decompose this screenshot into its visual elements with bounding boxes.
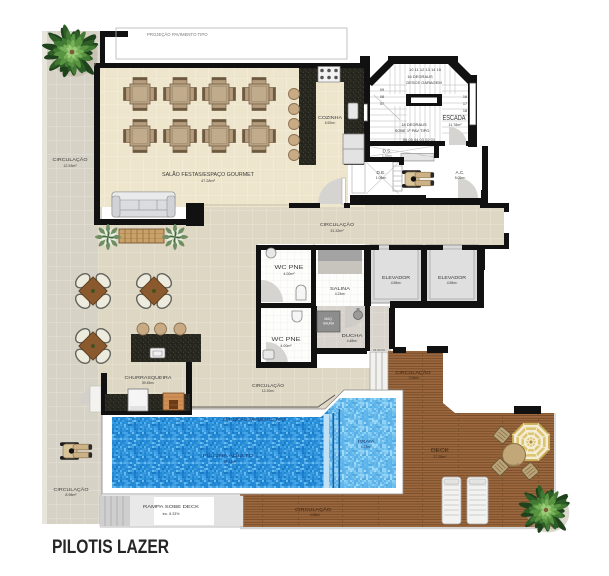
svg-text:MAQ.: MAQ. (324, 317, 332, 321)
svg-text:4.08m²: 4.08m² (310, 513, 321, 517)
svg-text:WC PNE: WC PNE (275, 265, 305, 271)
svg-text:inc. 8.33%: inc. 8.33% (163, 512, 181, 516)
svg-text:4.48m²: 4.48m² (347, 339, 358, 343)
svg-text:DESCE GARAGEM: DESCE GARAGEM (406, 80, 441, 85)
svg-text:SALINA: SALINA (330, 286, 350, 291)
svg-text:47.28m²: 47.28m² (201, 179, 216, 183)
svg-text:ELEVADOR: ELEVADOR (438, 275, 466, 280)
svg-text:COZINHA: COZINHA (318, 115, 343, 120)
svg-text:16 DEGRAUS: 16 DEGRAUS (407, 74, 433, 79)
svg-text:8.98m²: 8.98m² (65, 493, 77, 497)
svg-text:CIRCULAÇÃO: CIRCULAÇÃO (320, 221, 354, 228)
svg-text:09: 09 (380, 88, 384, 92)
svg-text:A.C.: A.C. (456, 170, 465, 175)
svg-text:18 DEGRAUS: 18 DEGRAUS (401, 122, 427, 127)
svg-text:4.55m²: 4.55m² (447, 281, 458, 285)
svg-text:1.93m²: 1.93m² (382, 154, 392, 158)
svg-text:39.45m²: 39.45m² (142, 381, 155, 385)
svg-text:17: 17 (463, 102, 467, 106)
svg-text:08: 08 (380, 95, 384, 99)
svg-text:12.93m²: 12.93m² (63, 164, 77, 168)
svg-text:2.06m²: 2.06m² (409, 376, 420, 380)
svg-text:07: 07 (380, 102, 384, 106)
svg-text:CIRCULAÇÃO: CIRCULAÇÃO (396, 369, 431, 375)
svg-text:CIRCULAÇÃO: CIRCULAÇÃO (295, 507, 332, 512)
svg-text:ESCADA: ESCADA (443, 115, 466, 122)
svg-text:PROJEÇÃO PAVIMENTO TIPO: PROJEÇÃO PAVIMENTO TIPO (147, 32, 208, 37)
svg-text:4.55m²: 4.55m² (391, 281, 402, 285)
svg-text:WC PNE: WC PNE (272, 337, 302, 343)
svg-text:31.32m²: 31.32m² (330, 229, 344, 233)
svg-text:5.05m²: 5.05m² (455, 176, 466, 180)
svg-text:11.78m²: 11.78m² (449, 123, 463, 127)
svg-text:SALÃO FESTAS/ESPAÇO GOURMET: SALÃO FESTAS/ESPAÇO GOURMET (162, 171, 255, 178)
svg-text:4.00m²: 4.00m² (280, 344, 292, 348)
svg-text:4.00m²: 4.00m² (283, 272, 295, 276)
svg-text:CIRCULAÇÃO: CIRCULAÇÃO (252, 382, 284, 388)
svg-text:06 05 04 03 02 01: 06 05 04 03 02 01 (403, 137, 436, 142)
svg-text:SAUNA: SAUNA (323, 322, 335, 326)
svg-text:DECK: DECK (431, 448, 450, 454)
svg-text:27.25m²: 27.25m² (433, 455, 447, 459)
svg-text:D.E.: D.E. (377, 170, 386, 175)
svg-text:RAMPA SOBE DECK: RAMPA SOBE DECK (143, 504, 199, 509)
svg-text:PILOTIS LAZER: PILOTIS LAZER (52, 536, 169, 558)
svg-text:4.23m²: 4.23m² (335, 292, 346, 296)
svg-text:PISCINA ADULTO: PISCINA ADULTO (203, 453, 255, 458)
svg-text:33.33m²: 33.33m² (223, 460, 237, 464)
svg-text:12.20m²: 12.20m² (262, 389, 275, 393)
svg-text:6.92m²: 6.92m² (325, 121, 336, 125)
svg-text:CIRCULAÇÃO: CIRCULAÇÃO (53, 156, 88, 163)
svg-text:SOBE 1º PAV TIPO: SOBE 1º PAV TIPO (395, 128, 430, 133)
svg-text:CHURRASQUEIRA: CHURRASQUEIRA (125, 375, 173, 380)
svg-text:D.S.: D.S. (383, 149, 392, 154)
svg-text:1.48m²: 1.48m² (361, 445, 372, 449)
svg-text:ELEVADOR: ELEVADOR (382, 275, 410, 280)
svg-text:1.08m²: 1.08m² (376, 176, 387, 180)
svg-text:01 02 03: 01 02 03 (373, 348, 385, 352)
svg-text:CIRCULAÇÃO: CIRCULAÇÃO (54, 486, 89, 493)
svg-text:PROJEÇÃO PAVIMENTO TIPO: PROJEÇÃO PAVIMENTO TIPO (223, 417, 287, 422)
svg-text:PRAIA: PRAIA (358, 439, 375, 444)
svg-text:18: 18 (463, 109, 467, 113)
svg-text:DUCHA: DUCHA (342, 333, 363, 338)
svg-text:10 11 12 13 14 15: 10 11 12 13 14 15 (409, 67, 442, 72)
svg-text:16: 16 (463, 95, 467, 99)
